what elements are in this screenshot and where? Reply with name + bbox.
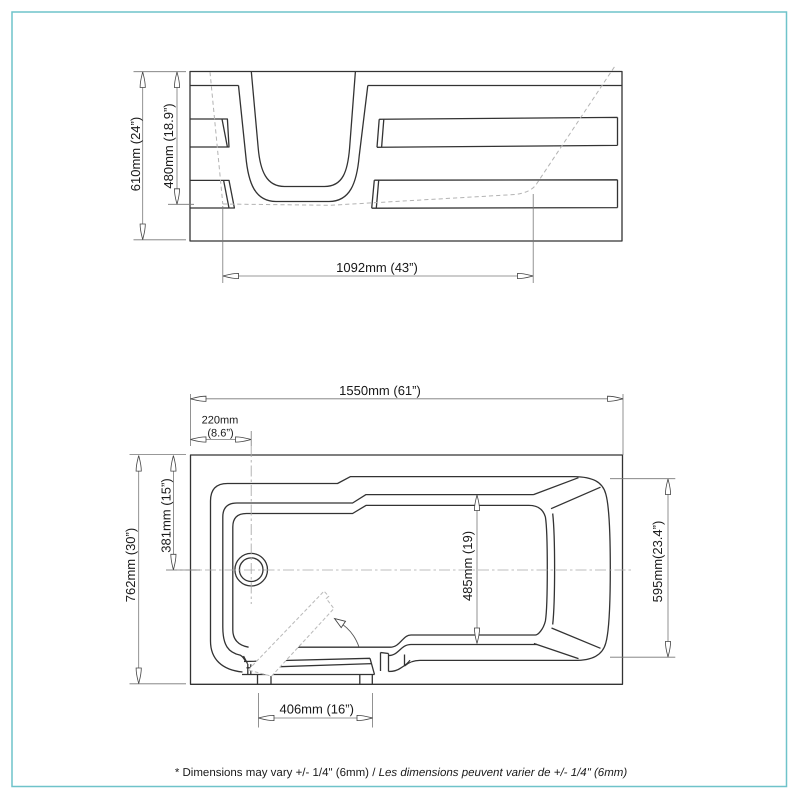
svg-text:595mm(23.4”): 595mm(23.4”) <box>650 521 665 603</box>
svg-text:381mm (15”): 381mm (15”) <box>159 478 174 552</box>
svg-text:485mm (19): 485mm (19) <box>460 531 475 601</box>
svg-text:1092mm (43”): 1092mm (43”) <box>336 260 418 275</box>
svg-text:(8.6”): (8.6”) <box>207 428 233 440</box>
svg-text:406mm (16”): 406mm (16”) <box>279 702 353 717</box>
svg-text:* Dimensions may vary +/- 1/4": * Dimensions may vary +/- 1/4" (6mm) / L… <box>175 767 628 779</box>
svg-text:610mm (24”): 610mm (24”) <box>128 117 143 191</box>
svg-text:1550mm (61”): 1550mm (61”) <box>339 383 421 398</box>
svg-text:762mm (30”): 762mm (30”) <box>123 528 138 602</box>
svg-text:220mm: 220mm <box>202 415 239 427</box>
svg-text:480mm (18.9”): 480mm (18.9”) <box>161 103 176 188</box>
